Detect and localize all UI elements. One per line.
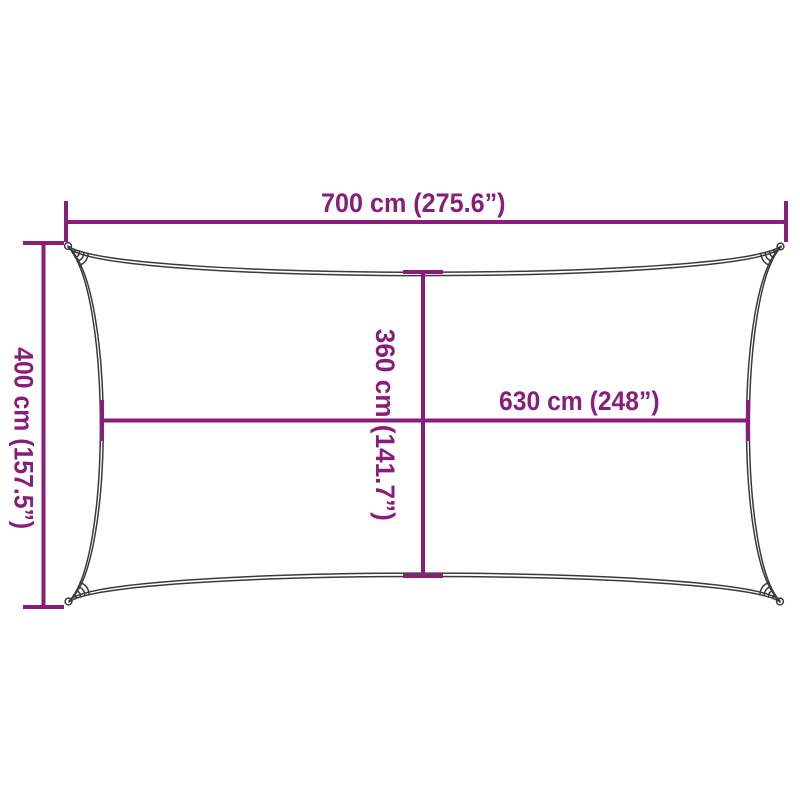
svg-text:360 cm (141.7”): 360 cm (141.7”) xyxy=(370,329,400,521)
svg-text:400 cm (157.5”): 400 cm (157.5”) xyxy=(8,347,38,529)
svg-text:630 cm (248”): 630 cm (248”) xyxy=(499,386,660,416)
svg-text:700 cm (275.6”): 700 cm (275.6”) xyxy=(321,188,506,218)
